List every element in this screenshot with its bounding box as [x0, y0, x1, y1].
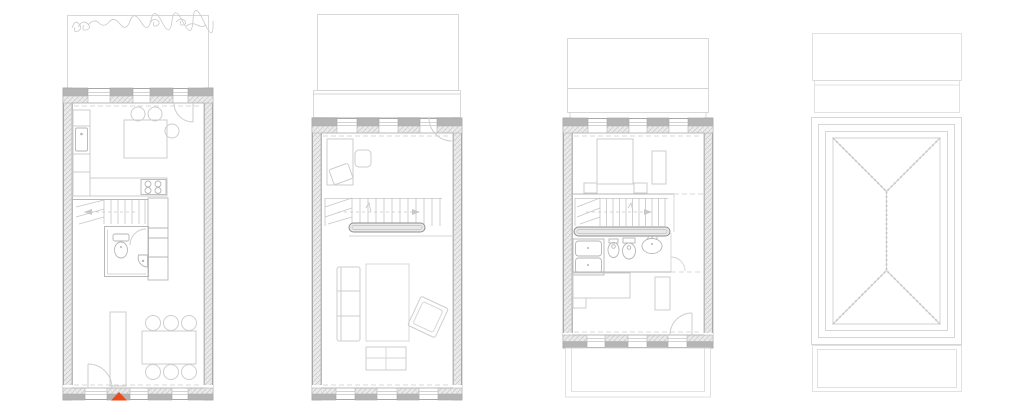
- floor-plan-sheet: [0, 0, 1024, 415]
- sheet-background: [0, 0, 1024, 415]
- floor-plan-drawing: [0, 0, 1024, 415]
- exterior-wall-bottom: [312, 385, 462, 400]
- exterior-wall-top: [563, 118, 713, 136]
- exterior-wall-bottom: [563, 332, 713, 348]
- stair-handrail-2: [574, 227, 670, 236]
- exterior-wall-top: [312, 118, 462, 136]
- stair-handrail: [349, 223, 425, 232]
- exterior-wall-top: [63, 88, 213, 106]
- exterior-wall-bottom: [63, 385, 213, 400]
